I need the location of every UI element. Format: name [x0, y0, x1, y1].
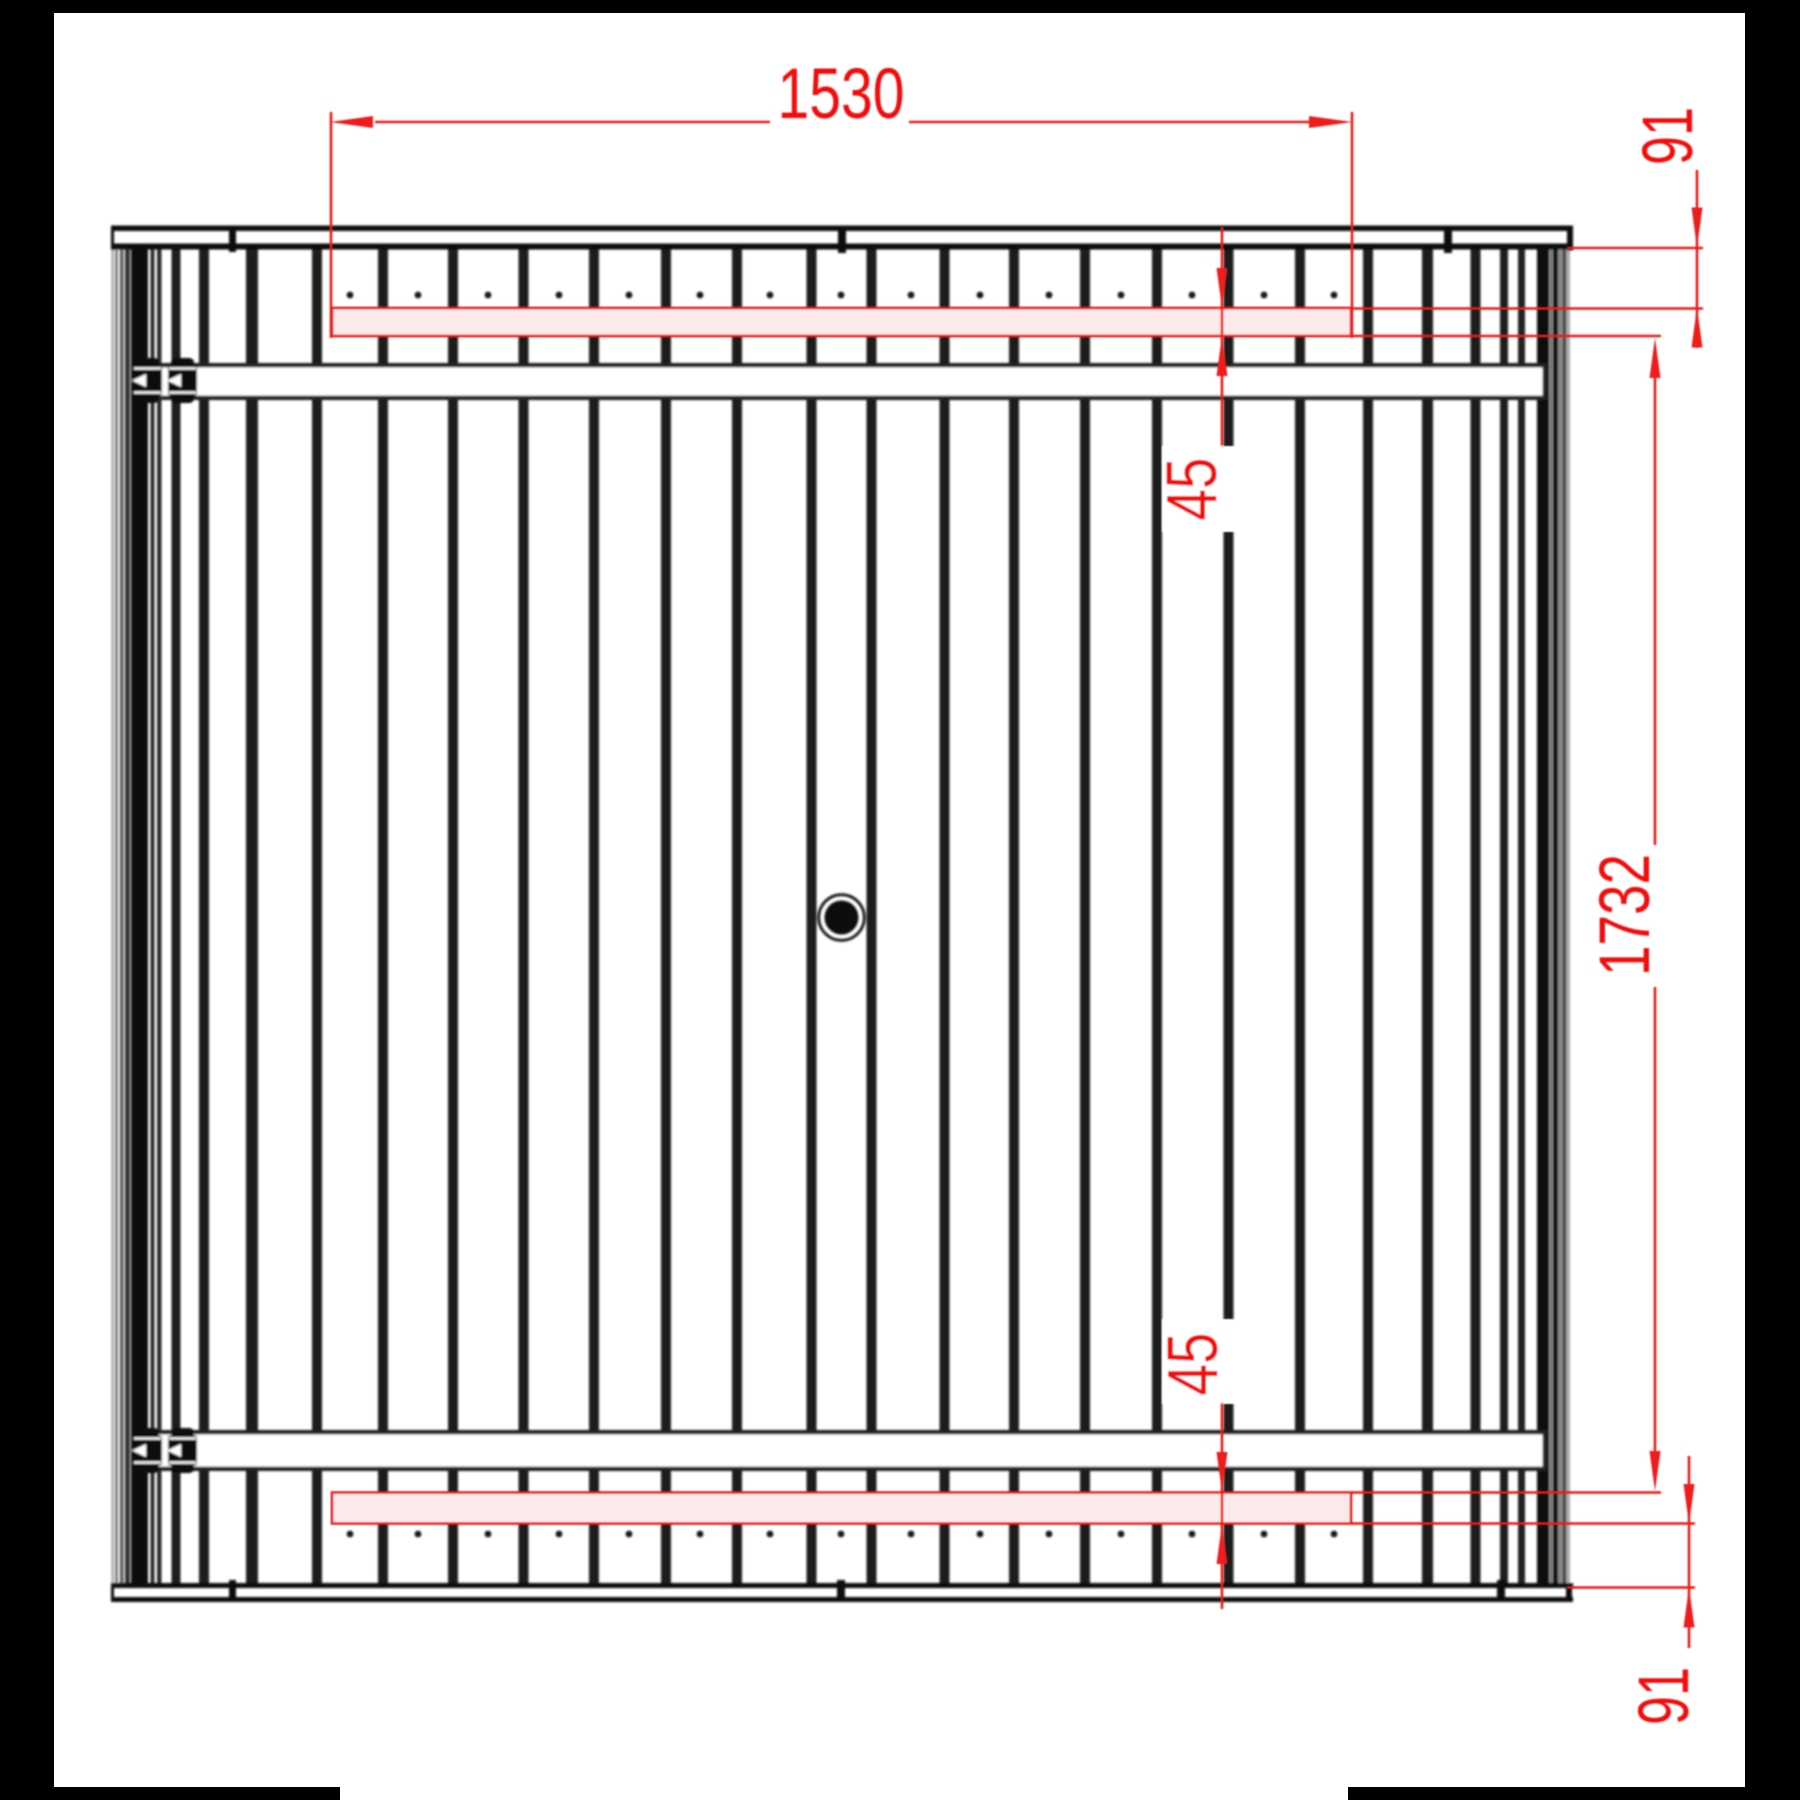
svg-text:45: 45 [1153, 458, 1232, 521]
svg-text:91: 91 [1625, 1667, 1704, 1725]
svg-text:1732: 1732 [1586, 854, 1665, 976]
svg-text:91: 91 [1629, 107, 1708, 165]
svg-text:1530: 1530 [778, 55, 905, 134]
svg-text:45: 45 [1154, 1333, 1233, 1396]
